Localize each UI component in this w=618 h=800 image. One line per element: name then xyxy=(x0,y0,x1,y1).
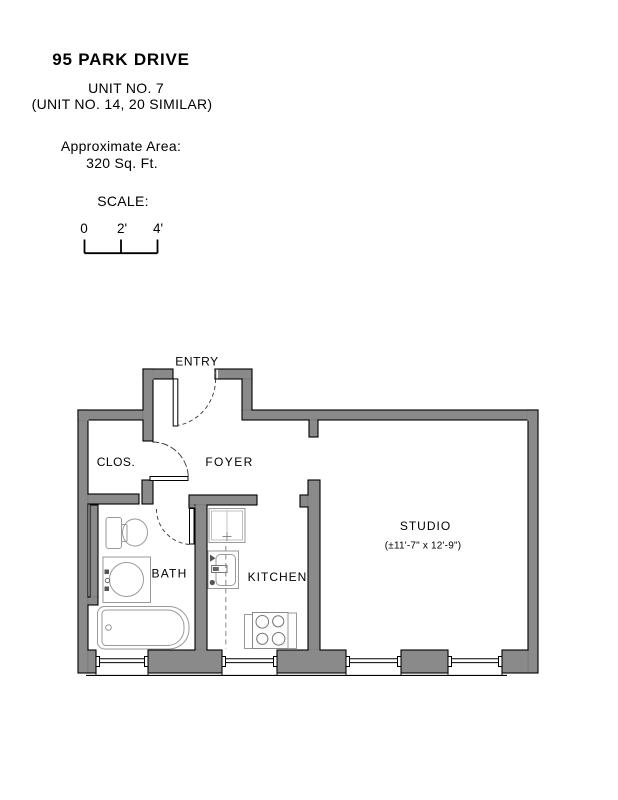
window xyxy=(346,657,401,676)
studio-dimensions: (±11'-7" x 12'-9") xyxy=(385,541,462,552)
room-label-entry: ENTRY xyxy=(175,355,218,369)
bath-fixtures xyxy=(98,518,190,650)
entry-door-arc xyxy=(178,372,216,426)
window xyxy=(96,657,148,676)
bathtub-fixture xyxy=(98,607,190,650)
scale-bar xyxy=(85,240,158,254)
window xyxy=(222,657,277,676)
counter-sink-fixture xyxy=(208,551,239,589)
refrigerator-fixture xyxy=(209,509,245,543)
sink-fixture xyxy=(103,557,151,603)
door-leaves xyxy=(150,379,194,544)
bath-door-leaf xyxy=(190,509,195,545)
room-label-studio: STUDIO xyxy=(400,519,451,533)
room-label-bath: BATH xyxy=(152,567,188,581)
entry-door-leaf xyxy=(173,379,178,426)
bath-door-arc xyxy=(157,509,193,545)
floor-plan-page: 95 PARK DRIVE UNIT NO. 7 (UNIT NO. 14, 2… xyxy=(0,0,618,800)
window xyxy=(448,657,502,676)
stove-fixture xyxy=(245,613,297,649)
walls-layer xyxy=(78,369,538,673)
closet-door-arc xyxy=(152,442,188,478)
floor-plan-drawing: ENTRY CLOS. FOYER BATH KITCHEN STUDIO (±… xyxy=(0,0,618,800)
room-label-kitchen: KITCHEN xyxy=(248,570,308,584)
room-label-foyer: FOYER xyxy=(205,455,253,469)
toilet-fixture xyxy=(106,518,148,549)
room-label-closet: CLOS. xyxy=(97,455,136,469)
closet-door-leaf xyxy=(150,477,188,481)
